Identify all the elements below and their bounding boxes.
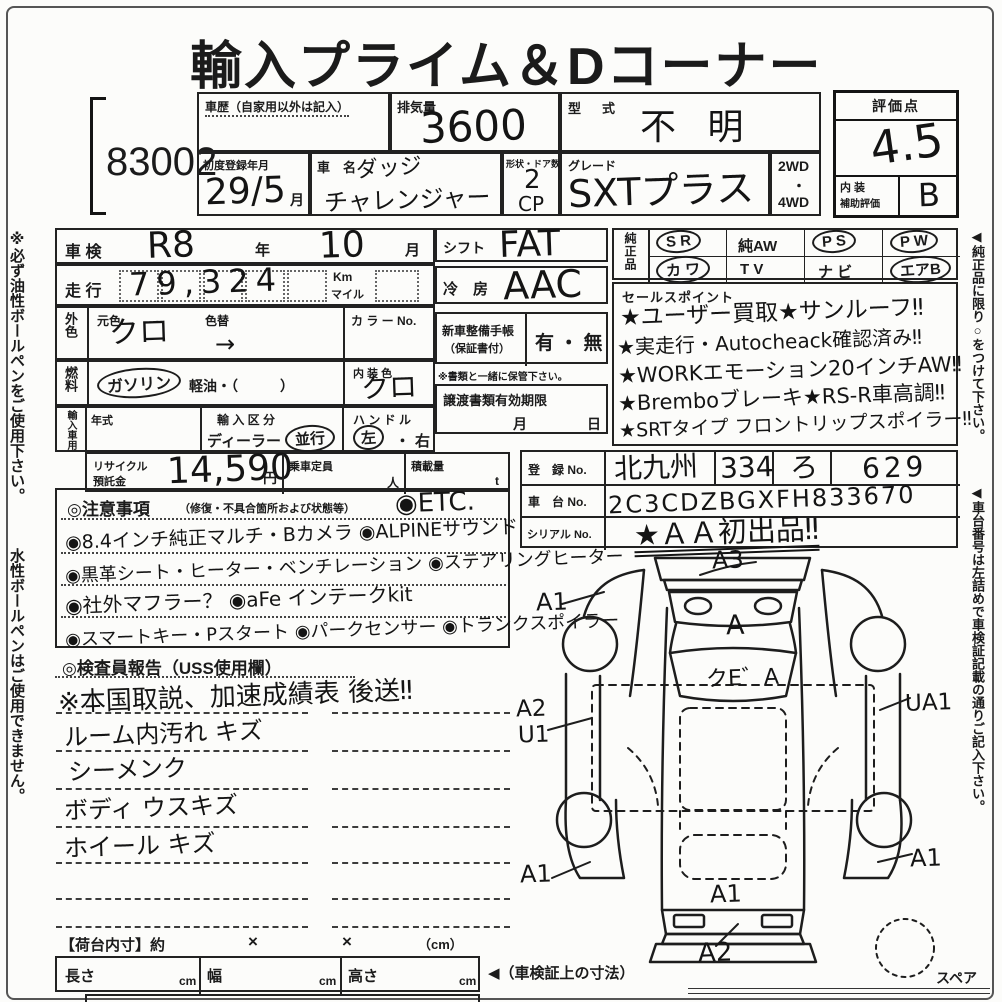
car-name-cell: 車 名 ダッジ チャレンジャー: [310, 152, 502, 216]
divider: [604, 452, 606, 550]
base-color-value: クロ: [108, 317, 169, 349]
cautions-header: ◎注意事項: [67, 495, 150, 520]
car-name-line1: ダッジ: [355, 156, 422, 183]
mark-a3-front: A3: [712, 547, 745, 572]
color-change-label: 色替: [205, 312, 229, 329]
recycle-label-2: 預託金: [93, 473, 126, 489]
divider: [199, 958, 201, 994]
write-line: [332, 898, 510, 900]
write-line: [332, 750, 510, 752]
transfer-day: 日: [587, 414, 601, 434]
shift-value: FAT: [498, 226, 560, 264]
cargo-unit: （cm）: [418, 934, 463, 953]
drive-cell: 2WD ・ 4WD: [770, 152, 821, 216]
import-row: 輸入車用 年式 輸 入 区 分 ディーラー 並行 ハ ン ド ル 左 ・ 右: [55, 406, 435, 452]
shift-cell: シフト FAT: [435, 228, 608, 262]
mark-a1-trunk: A1: [710, 881, 743, 906]
genuine-ps-circled: P S: [811, 228, 856, 254]
chassis-no-label: 車 台 No.: [528, 493, 587, 510]
shaken-year-suffix: 年: [255, 239, 270, 260]
interior-label-top: 内 装: [840, 179, 865, 195]
write-line: [56, 712, 308, 714]
cautions-header-sub: （修復・不具合箇所および状態等）: [179, 500, 355, 516]
mileage-row: 走 行 Km マイル 79,324: [55, 264, 435, 306]
clipped-next-row: [85, 994, 480, 1002]
reg-no-label: 登 録 No.: [528, 461, 587, 478]
recycle-row: リサイクル 預託金 14,590 円 乗車定員 人 積載量 t: [85, 452, 510, 492]
mark-a2-rear: A2: [698, 939, 733, 966]
genuine-tv: T V: [740, 261, 763, 278]
body-doors-cell: 形状・ドア数 2 CP: [502, 152, 560, 216]
car-name-label: 車 名: [317, 157, 356, 176]
chassis-value: 2C3CDZBGXFH833670: [608, 483, 916, 518]
write-line: [332, 926, 510, 928]
left-margin-note-1: ※必ず油性ボールペンをご使用下さい。: [6, 230, 27, 540]
divider: [87, 362, 89, 408]
car-diagram: [528, 548, 1002, 992]
caution-line: ◉8.4インチ純正マルチ・Bカメラ ◉ALPINEサウンド: [65, 518, 519, 553]
interior-color-value: クロ: [361, 373, 418, 403]
right-margin-note-1: ◀純正品に限り○をつけて下さい。: [968, 230, 987, 480]
model-code-cell: 型 式 不 明: [560, 92, 821, 152]
handle-left-circled: 左: [352, 424, 385, 451]
spare-label: スペア: [936, 968, 977, 988]
displacement-value: 3600: [419, 104, 527, 150]
service-book-value: 有 ・ 無: [535, 328, 603, 355]
handle-separator: ・: [395, 430, 410, 451]
first-reg-value: 29/5: [204, 173, 286, 212]
service-book-label-1: 新車整備手帳: [442, 322, 514, 339]
mileage-value: 79,324: [128, 263, 283, 300]
sales-point-line: ★SRTタイプ フロントリップスポイラー‼: [619, 410, 972, 441]
mileage-label: 走 行: [65, 277, 101, 301]
color-change-arrow: →: [215, 332, 235, 356]
exterior-color-row: 外色 元色 クロ 色替 → カ ラ ー No.: [55, 306, 435, 360]
mark-a1-front-left: A1: [536, 589, 569, 614]
ac-label: 冷 房: [443, 278, 488, 299]
write-line: [56, 788, 308, 790]
cargo-x1: ×: [248, 932, 258, 952]
mark-u1-left-side: U1: [518, 723, 550, 747]
inspector-rule: [55, 676, 355, 678]
fuel-gasoline-circled: ガソリン: [96, 365, 182, 401]
shaken-label: 車 検: [65, 238, 101, 262]
inspector-line: シーメンク: [68, 756, 188, 784]
cargo-x2: ×: [342, 932, 352, 952]
divider: [343, 308, 345, 362]
car-name-line2: チャレンジャー: [324, 185, 491, 215]
mark-a1-rear-left: A1: [520, 861, 553, 886]
body-doors-suffix: CP: [518, 194, 544, 214]
transfer-label: 譲渡書類有効期限: [443, 390, 547, 409]
mileage-unit-mile: マイル: [331, 286, 364, 302]
divider: [343, 362, 345, 408]
registration-block: 登 録 No. 北九州 334 ろ 629 車 台 No. 2C3CDZBGXF…: [520, 450, 958, 548]
length-unit: cm: [179, 974, 196, 988]
mark-a2-left-side: A2: [516, 697, 547, 721]
inspector-line: ルーム内汚れ キズ: [64, 719, 264, 750]
divider: [87, 308, 89, 362]
write-line: [332, 826, 510, 828]
left-margin-note-2: 水性ボールペンはご使用できません。: [6, 548, 27, 838]
drive-4wd: 4WD: [778, 194, 809, 210]
capacity-label: 乗車定員: [289, 458, 333, 474]
fuel-row: 燃料 ガソリン 軽油・（ ） 内 装 色 クロ: [55, 360, 435, 406]
page-title: 輸入プライム＆Dコーナー: [190, 24, 814, 99]
drive-separator: ・: [792, 176, 806, 196]
genuine-aw: 純AW: [738, 235, 777, 256]
import-label: 輸入車用: [63, 410, 78, 452]
divider: [830, 452, 832, 484]
car-history-label: 車歴（自家用以外は記入）: [205, 98, 349, 117]
mark-a1-rear-right: A1: [910, 845, 943, 870]
mark-windshield: クE゛A: [706, 667, 780, 692]
genuine-pw-circled: P W: [889, 228, 939, 254]
genuine-label: 純正品: [622, 232, 639, 280]
dimensions-row: 長さ cm 幅 cm 高さ cm: [55, 956, 480, 992]
transfer-cell: 譲渡書類有効期限 月 日: [435, 384, 608, 434]
load-unit: t: [495, 474, 499, 488]
load-label: 積載量: [411, 458, 444, 474]
write-line: [56, 750, 308, 752]
model-code-value: 不 明: [640, 110, 753, 146]
service-book-cell: 新車整備手帳 （保証書付） 有 ・ 無: [435, 312, 608, 364]
serial-no-label: シリアル No.: [527, 526, 592, 542]
exterior-color-label: 外色: [61, 312, 80, 358]
first-reg-unit: 月: [290, 190, 304, 210]
caution-item-etc: ◉ETC.: [395, 489, 476, 518]
auction-sheet: 輸入プライム＆Dコーナー 83002 車歴（自家用以外は記入） 排気量 3600…: [0, 0, 1002, 1002]
shaken-month-suffix: 月: [405, 239, 420, 260]
width-label: 幅: [207, 965, 222, 986]
mileage-box: [287, 270, 327, 302]
divider: [342, 408, 344, 454]
reg-class: 334: [720, 453, 774, 483]
drive-2wd: 2WD: [778, 158, 809, 174]
service-book-note: ※書類と一緒に保管下さい。: [438, 368, 568, 383]
sales-points-box: セールスポイント ★ユーザー買取★サンルーフ‼ ★実走行・Autocheack確…: [612, 282, 958, 446]
mark-a-hood: A: [726, 612, 745, 640]
cautions-box: ◎注意事項 （修復・不具合箇所および状態等） ◉ETC. ◉8.4インチ純正マル…: [55, 488, 510, 648]
divider: [85, 408, 87, 454]
right-margin-note-2: ◀車台番号は左詰めで車検証記載の通りご記入下さい。: [968, 486, 987, 830]
length-label: 長さ: [65, 965, 95, 986]
service-book-label-2: （保証書付）: [444, 340, 510, 356]
cargo-label: 【荷台内寸】約: [60, 934, 165, 955]
write-line: [332, 788, 510, 790]
fuel-diesel: 軽油・（ ）: [189, 376, 294, 396]
color-no-label: カ ラ ー No.: [351, 312, 416, 329]
divider: [340, 958, 342, 994]
divider: [714, 452, 716, 484]
genuine-grid: 純正品 S R 純AW P S P W カ ワ T V ナ ビ エアB: [612, 228, 958, 280]
mileage-unit-km: Km: [333, 270, 352, 284]
score-value: 4.5: [867, 116, 946, 172]
transfer-month: 月: [513, 414, 527, 434]
reg-area: 北九州: [614, 453, 699, 484]
recycle-label-1: リサイクル: [93, 458, 147, 474]
sales-point-line: ★実走行・Autocheack確認済み‼: [617, 327, 922, 358]
genuine-sunroof-circled: S R: [655, 228, 702, 254]
evaluation-divider-v: [898, 175, 900, 215]
divider: [882, 230, 883, 282]
write-line: [56, 862, 308, 864]
write-line: [56, 898, 308, 900]
shaken-era: R8: [146, 227, 195, 265]
lot-bracket: [90, 97, 106, 215]
inspector-line: ボディ ウスキズ: [64, 793, 239, 823]
ac-value: AAC: [502, 265, 582, 306]
width-unit: cm: [319, 974, 336, 988]
fuel-label: 燃料: [61, 366, 80, 406]
body-doors-value: 2: [524, 167, 541, 193]
year-model-label: 年式: [91, 412, 113, 428]
reg-kana: ろ: [790, 454, 819, 483]
write-line: [56, 826, 308, 828]
import-class-label: 輸 入 区 分: [217, 411, 275, 428]
displacement-cell: 排気量 3600: [390, 92, 560, 152]
shaken-row: 車 検 R8 年 10 月: [55, 228, 435, 264]
mark-ua1-right-side: UA1: [905, 691, 953, 716]
caution-line: ◉社外マフラー？ ◉aFe インテークkit: [65, 584, 413, 616]
interior-value: B: [917, 179, 940, 212]
inspector-line: ホイール キズ: [64, 831, 216, 860]
write-line: [56, 926, 308, 928]
height-label: 高さ: [348, 965, 378, 986]
model-code-label: 型 式: [568, 98, 619, 117]
ac-cell: 冷 房 AAC: [435, 266, 608, 304]
divider: [525, 314, 527, 366]
shaken-month: 10: [318, 227, 365, 265]
write-line: [332, 862, 510, 864]
recycle-unit: 円: [263, 468, 277, 488]
write-line: [332, 712, 510, 714]
genuine-navi: ナ ビ: [818, 261, 852, 282]
handle-right: 右: [415, 430, 430, 451]
rule: [688, 993, 990, 994]
divider: [804, 230, 805, 282]
height-unit: cm: [459, 974, 476, 988]
mileage-box: [375, 270, 419, 302]
evaluation-box: 評価点 4.5 内 装 補助評価 B: [833, 90, 959, 218]
shift-label: シフト: [443, 238, 485, 258]
reg-number: 629: [862, 453, 928, 483]
divider: [200, 408, 202, 454]
grade-value: SXTプラス: [567, 169, 754, 213]
first-reg-cell: 初度登録年月 29/5 月: [197, 152, 310, 216]
car-history-cell: 車歴（自家用以外は記入）: [197, 92, 390, 152]
divider: [726, 230, 727, 282]
interior-label-bottom: 補助評価: [840, 195, 880, 210]
grade-cell: グレード SXTプラス: [560, 152, 770, 216]
